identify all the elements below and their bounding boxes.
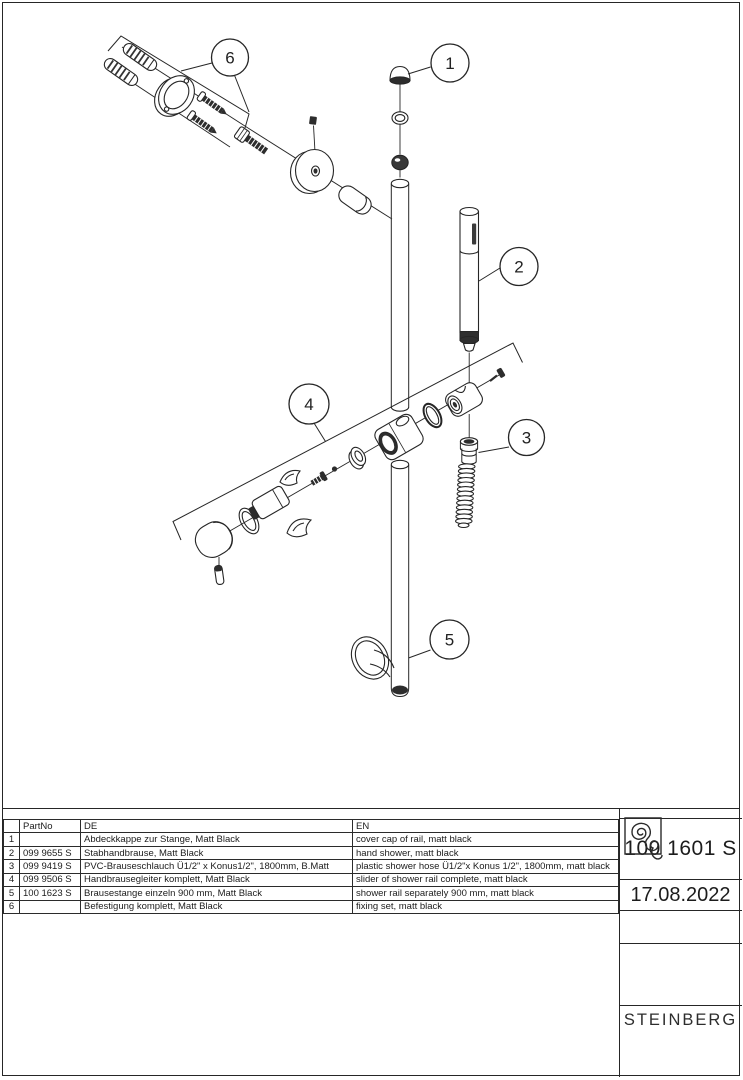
callout-6: 6 [212, 39, 249, 76]
cell-no: 5 [4, 887, 20, 900]
callout-1-label: 1 [445, 54, 454, 73]
o-ring [420, 401, 445, 430]
callout-2: 2 [479, 248, 538, 286]
cell-de: Stabhandbrause, Matt Black [81, 846, 353, 859]
cell-de: PVC-Brauseschlauch Ü1/2" x Konus1/2", 18… [81, 860, 353, 873]
header-no [4, 820, 20, 833]
cell-en: slider of shower rail complete, matt bla… [353, 873, 619, 886]
callout-4: 4 [289, 384, 329, 442]
cover-cap-part [390, 67, 410, 178]
header-en: EN [353, 820, 619, 833]
title-block-empty-field [620, 943, 742, 1005]
cell-de: Abdeckkappe zur Stange, Matt Black [81, 833, 353, 846]
brand-panel: STEINBERG [620, 1005, 742, 1077]
cell-partno [20, 833, 81, 846]
cell-en: shower rail separately 900 mm, matt blac… [353, 887, 619, 900]
set-screw [309, 471, 328, 488]
wall-disc [291, 116, 334, 193]
cell-de: Handbrausegleiter komplett, Matt Black [81, 873, 353, 886]
callout-6-label: 6 [225, 49, 234, 68]
callout-3-label: 3 [522, 429, 531, 448]
table-row: 5 100 1623 S Brausestange einzeln 900 mm… [4, 887, 619, 900]
pull-pin [214, 565, 224, 585]
cell-no: 2 [4, 846, 20, 859]
cell-en: cover cap of rail, matt black [353, 833, 619, 846]
header-de: DE [81, 820, 353, 833]
header-partno: PartNo [20, 820, 81, 833]
cell-no: 1 [4, 833, 20, 846]
cell-no: 3 [4, 860, 20, 873]
callout-5-label: 5 [445, 631, 454, 650]
detent-ball [332, 466, 337, 471]
hose-corrugation [456, 464, 475, 528]
retainer-clip [287, 519, 311, 537]
cell-de: Befestigung komplett, Matt Black [81, 900, 353, 913]
table-row: 6 Befestigung komplett, Matt Black fixin… [4, 900, 619, 913]
title-block: 100 1601 S 17.08.2022 STEINBERG [619, 809, 742, 1077]
cell-partno: 099 9655 S [20, 846, 81, 859]
holder-screw [496, 367, 506, 378]
retainer-clip [280, 470, 300, 485]
callout-5: 5 [409, 620, 470, 659]
slider-knob [190, 516, 238, 563]
callout-1: 1 [408, 44, 469, 82]
cell-no: 4 [4, 873, 20, 886]
exploded-view-diagram: 1 2 3 4 5 6 [0, 0, 743, 812]
cell-partno: 100 1623 S [20, 887, 81, 900]
table-row: 2 099 9655 S Stabhandbrause, Matt Black … [4, 846, 619, 859]
shower-hose-part [456, 438, 478, 528]
mounting-screw [186, 110, 219, 137]
cell-en: hand shower, matt black [353, 846, 619, 859]
hand-shower-holder [443, 380, 485, 419]
parts-table-header-row: PartNo DE EN [4, 820, 619, 833]
cell-en: plastic shower hose Ü1/2"x Konus 1/2", 1… [353, 860, 619, 873]
table-row: 4 099 9506 S Handbrausegleiter komplett,… [4, 873, 619, 886]
title-block-empty-field [620, 910, 742, 943]
callout-4-label: 4 [304, 395, 313, 414]
cell-partno [20, 900, 81, 913]
cell-partno: 099 9419 S [20, 860, 81, 873]
cell-en: fixing set, matt black [353, 900, 619, 913]
callout-3: 3 [479, 420, 545, 456]
parts-table: PartNo DE EN 1 Abdeckkappe zur Stange, M… [3, 819, 619, 914]
callout-2-label: 2 [514, 258, 523, 277]
table-row: 3 099 9419 S PVC-Brauseschlauch Ü1/2" x … [4, 860, 619, 873]
drawing-sheet: 1 2 3 4 5 6 PartNo [0, 0, 743, 1080]
cell-partno: 099 9506 S [20, 873, 81, 886]
drawing-date: 17.08.2022 [620, 879, 742, 910]
steinberg-logo-icon [620, 815, 668, 863]
slider-body [372, 412, 425, 462]
table-row: 1 Abdeckkappe zur Stange, Matt Black cov… [4, 833, 619, 846]
mounting-screw [196, 91, 229, 118]
hand-shower-part [460, 208, 479, 385]
cell-de: Brausestange einzeln 900 mm, Matt Black [81, 887, 353, 900]
cell-no: 6 [4, 900, 20, 913]
spacer-cylinder [336, 183, 375, 218]
washer [345, 445, 370, 472]
brand-name: STEINBERG [624, 1011, 737, 1030]
